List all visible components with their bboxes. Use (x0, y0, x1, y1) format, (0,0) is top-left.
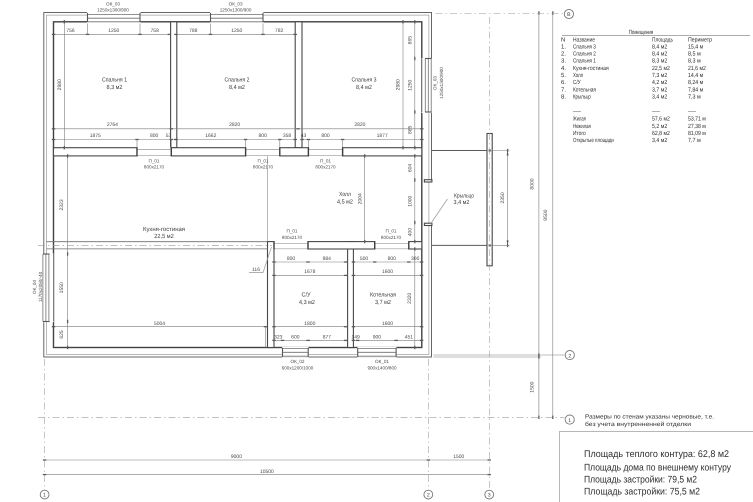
svg-text:800х2170: 800х2170 (282, 235, 303, 240)
svg-text:В: В (567, 12, 571, 18)
svg-text:Спальня 1: Спальня 1 (102, 76, 128, 83)
svg-text:865: 865 (407, 36, 413, 45)
svg-text:2980: 2980 (57, 79, 63, 90)
svg-text:800х2170: 800х2170 (315, 165, 336, 170)
svg-text:149: 149 (351, 335, 360, 341)
svg-text:1250х1300/900: 1250х1300/900 (439, 67, 444, 99)
svg-text:604: 604 (407, 164, 413, 173)
svg-text:N: N (561, 37, 565, 44)
svg-text:8,4 м2: 8,4 м2 (652, 51, 668, 58)
svg-text:600: 600 (291, 335, 300, 341)
svg-text:1600: 1600 (382, 269, 393, 275)
svg-text:4,2 м2: 4,2 м2 (652, 79, 668, 86)
svg-text:8,4 м2: 8,4 м2 (356, 84, 373, 91)
svg-text:800х2170: 800х2170 (253, 165, 274, 170)
svg-text:1550: 1550 (59, 282, 65, 293)
svg-text:800: 800 (388, 256, 397, 262)
svg-text:600х1200/1000: 600х1200/1000 (282, 365, 314, 370)
svg-text:22,5 м2: 22,5 м2 (652, 65, 670, 72)
svg-text:ОК_03: ОК_03 (229, 1, 243, 6)
svg-text:2320: 2320 (407, 292, 413, 303)
svg-text:П_01: П_01 (149, 159, 160, 164)
svg-text:14,4 м: 14,4 м (688, 72, 703, 79)
svg-text:Площадь теплого контура: 62,8: Площадь теплого контура: 62,8 м2 (584, 449, 729, 460)
svg-text:884: 884 (323, 256, 332, 262)
svg-text:1000: 1000 (407, 195, 413, 206)
svg-text:2820: 2820 (354, 122, 365, 128)
svg-text:1500: 1500 (453, 454, 464, 460)
svg-text:451: 451 (405, 335, 414, 341)
svg-text:ОК_01: ОК_01 (375, 359, 389, 364)
svg-text:П_01: П_01 (287, 229, 298, 234)
svg-text:С/У: С/У (573, 79, 581, 86)
svg-text:788: 788 (189, 28, 198, 34)
svg-text:81,09 м: 81,09 м (688, 130, 706, 137)
svg-text:1877: 1877 (377, 133, 388, 139)
svg-text:1250х1300/900: 1250х1300/900 (220, 8, 252, 13)
svg-text:1250х1300/900: 1250х1300/900 (97, 8, 129, 13)
svg-text:27,38 м: 27,38 м (688, 123, 706, 130)
svg-text:Площадь: Площадь (652, 37, 673, 44)
svg-text:4,5 м2: 4,5 м2 (337, 199, 354, 206)
svg-text:Спальня 1: Спальня 1 (573, 58, 596, 65)
svg-text:3,4 м2: 3,4 м2 (652, 94, 668, 101)
svg-text:323: 323 (274, 335, 283, 341)
svg-text:Спальня 2: Спальня 2 (573, 51, 596, 58)
svg-text:Кухня-гостиная: Кухня-гостиная (143, 226, 185, 233)
svg-text:9500: 9500 (543, 209, 549, 220)
svg-text:5.: 5. (561, 72, 566, 79)
svg-text:756: 756 (66, 28, 75, 34)
svg-text:5,2 м2: 5,2 м2 (652, 123, 668, 130)
svg-text:1250: 1250 (407, 79, 413, 90)
svg-text:7,3 м: 7,3 м (688, 94, 701, 101)
svg-text:ОК_02: ОК_02 (291, 359, 305, 364)
svg-text:5004: 5004 (154, 321, 165, 327)
svg-text:Кухня-гостиная: Кухня-гостиная (573, 65, 609, 72)
svg-text:900х1400/800: 900х1400/800 (367, 365, 397, 370)
svg-text:800: 800 (259, 133, 268, 139)
svg-text:ОК_03: ОК_03 (433, 76, 438, 90)
svg-text:21,6 м2: 21,6 м2 (688, 65, 706, 72)
svg-text:800: 800 (150, 133, 159, 139)
svg-text:8,24 м: 8,24 м (688, 79, 703, 86)
svg-text:Помещения: Помещения (629, 29, 654, 36)
svg-text:Размеры по стенам указаны черн: Размеры по стенам указаны черновые, т.е. (585, 413, 714, 420)
svg-text:43: 43 (301, 133, 307, 139)
svg-text:8,5 м: 8,5 м (688, 51, 701, 58)
svg-text:53,71 м: 53,71 м (688, 116, 706, 123)
svg-text:22,5 м2: 22,5 м2 (154, 233, 174, 240)
svg-text:1: 1 (568, 418, 571, 424)
svg-text:1.: 1. (561, 43, 566, 50)
svg-text:57,6 м2: 57,6 м2 (652, 116, 670, 123)
svg-text:3: 3 (488, 493, 491, 499)
svg-text:62,8 м2: 62,8 м2 (652, 130, 670, 137)
svg-text:ОК_04: ОК_04 (32, 280, 37, 294)
svg-text:500: 500 (360, 256, 369, 262)
svg-text:8.: 8. (561, 94, 566, 101)
svg-text:2: 2 (568, 353, 571, 359)
svg-text:ОК_03: ОК_03 (106, 1, 120, 6)
svg-text:1500: 1500 (530, 381, 536, 392)
svg-text:2004: 2004 (357, 193, 363, 204)
svg-text:Котельная: Котельная (573, 86, 596, 93)
svg-text:2820: 2820 (229, 122, 240, 128)
svg-text:758: 758 (151, 28, 160, 34)
svg-text:8,3 м2: 8,3 м2 (107, 84, 124, 91)
svg-text:Спальня 3: Спальня 3 (352, 76, 378, 83)
svg-text:8,3 м2: 8,3 м2 (652, 58, 668, 65)
svg-text:1170х2050/-40: 1170х2050/-40 (38, 271, 43, 302)
svg-text:8,4 м2: 8,4 м2 (652, 43, 668, 50)
svg-text:Котельная: Котельная (370, 292, 396, 299)
svg-text:53: 53 (166, 133, 172, 139)
svg-text:Спальня 3: Спальня 3 (573, 43, 596, 50)
svg-text:358: 358 (283, 133, 292, 139)
svg-text:7.: 7. (561, 86, 566, 93)
svg-text:Итого: Итого (573, 130, 586, 137)
svg-text:4.: 4. (561, 65, 566, 72)
svg-text:400: 400 (407, 228, 413, 237)
svg-text:1875: 1875 (90, 133, 101, 139)
svg-text:Спальня 2: Спальня 2 (225, 76, 251, 83)
svg-text:800: 800 (287, 256, 296, 262)
svg-text:Открытые площади: Открытые площади (573, 137, 614, 144)
svg-text:Площадь дома по внешнему конту: Площадь дома по внешнему контуру (584, 463, 731, 474)
svg-text:Название: Название (573, 37, 596, 44)
svg-text:Холл: Холл (573, 72, 584, 79)
svg-text:2764: 2764 (107, 122, 118, 128)
svg-text:3.: 3. (561, 58, 566, 65)
svg-text:900: 900 (373, 335, 382, 341)
svg-text:300: 300 (411, 256, 420, 262)
svg-text:116: 116 (252, 267, 260, 273)
svg-text:6.: 6. (561, 79, 566, 86)
svg-text:П_01: П_01 (320, 159, 331, 164)
svg-text:8,4 м2: 8,4 м2 (229, 84, 246, 91)
svg-text:1250: 1250 (108, 28, 119, 34)
svg-text:3,4 м2: 3,4 м2 (454, 199, 471, 206)
svg-text:1678: 1678 (304, 269, 315, 275)
svg-text:800: 800 (321, 133, 330, 139)
svg-text:1600: 1600 (382, 321, 393, 327)
svg-text:9000: 9000 (231, 454, 242, 460)
svg-text:8,3 м: 8,3 м (688, 58, 701, 65)
svg-text:2323: 2323 (59, 199, 65, 210)
svg-text:2350: 2350 (500, 192, 506, 203)
svg-text:3,7 м2: 3,7 м2 (652, 86, 668, 93)
svg-text:1662: 1662 (205, 133, 216, 139)
svg-text:Крыльцо: Крыльцо (573, 94, 591, 101)
svg-text:4,3 м2: 4,3 м2 (299, 299, 316, 306)
svg-text:800х2170: 800х2170 (144, 165, 165, 170)
svg-text:7,3 м2: 7,3 м2 (652, 72, 668, 79)
svg-text:8000: 8000 (529, 178, 535, 189)
svg-text:Крыльцо: Крыльцо (454, 192, 475, 199)
svg-text:П_01: П_01 (258, 159, 269, 164)
svg-text:Периметр: Периметр (688, 37, 713, 44)
svg-text:без учета внутренненней отделк: без учета внутренненней отделки (585, 421, 691, 428)
svg-text:С/У: С/У (302, 292, 311, 299)
svg-text:Нежилая: Нежилая (573, 123, 591, 130)
svg-text:2980: 2980 (396, 79, 402, 90)
svg-text:2: 2 (427, 493, 430, 499)
svg-text:1: 1 (43, 493, 46, 499)
svg-text:7,7 м: 7,7 м (688, 137, 701, 144)
svg-text:10500: 10500 (260, 469, 274, 475)
svg-text:3,7 м2: 3,7 м2 (375, 299, 392, 306)
svg-text:Холл: Холл (339, 191, 351, 198)
svg-text:800х2170: 800х2170 (381, 235, 402, 240)
svg-text:1250: 1250 (231, 28, 242, 34)
svg-text:15,4 м: 15,4 м (688, 43, 703, 50)
svg-text:7,84 м: 7,84 м (688, 86, 703, 93)
svg-text:Площадь застройки: 79,5 м2: Площадь застройки: 79,5 м2 (584, 475, 697, 486)
svg-text:Площадь застройки: 75,5 м2: Площадь застройки: 75,5 м2 (584, 487, 700, 498)
svg-text:3,4 м2: 3,4 м2 (652, 137, 668, 144)
svg-text:Жилая: Жилая (573, 116, 586, 123)
svg-text:1800: 1800 (304, 321, 315, 327)
svg-text:2.: 2. (561, 51, 566, 58)
svg-text:625: 625 (59, 330, 65, 339)
svg-text:782: 782 (275, 28, 284, 34)
svg-text:П_01: П_01 (386, 229, 397, 234)
svg-text:865: 865 (407, 125, 413, 134)
svg-text:877: 877 (323, 335, 332, 341)
